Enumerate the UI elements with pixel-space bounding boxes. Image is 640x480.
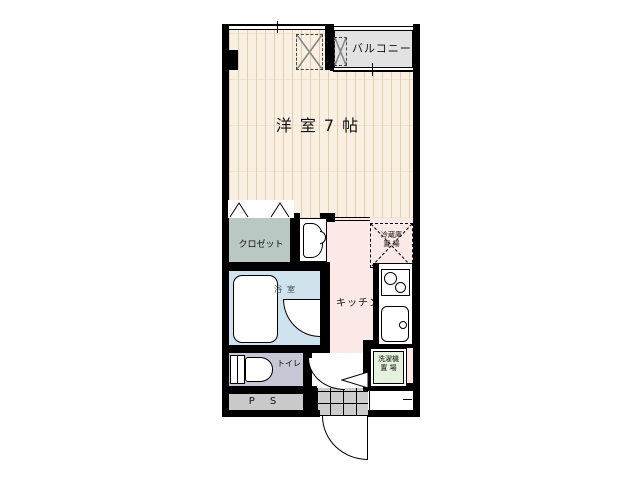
- stove-burner-icon: [395, 282, 406, 293]
- refrigerator-label-line2: 置 場: [383, 240, 399, 248]
- wall-left: [222, 24, 229, 417]
- floor-plan: バルコニー 洋室7帖 クロゼット 浴室 キッチン 冷蔵庫 置 場: [0, 0, 640, 480]
- toilet-label: トイレ: [277, 358, 301, 369]
- faucet-icon: [399, 321, 407, 329]
- wall-entrance-left: [303, 386, 317, 415]
- bathroom-label: 浴室: [274, 284, 300, 295]
- sliding-door-mullion-mark: [372, 63, 373, 76]
- entrance-step: [369, 391, 408, 410]
- washer-space-label: 洗濯機 置 場: [370, 355, 407, 373]
- wall-closet-bath: [222, 262, 330, 271]
- refrigerator-label-line1: 冷蔵庫: [381, 231, 402, 239]
- toilet-bowl: [245, 357, 273, 382]
- washer-label-line2: 置 場: [380, 364, 396, 372]
- bathtub: [233, 275, 278, 343]
- wall-bath-kitchen: [320, 262, 330, 353]
- pipe-space-label: P S: [228, 396, 303, 407]
- window-mullion-mark: [277, 21, 278, 33]
- wall-right: [413, 24, 420, 417]
- balcony-sliding-door-line: [333, 67, 413, 68]
- opening-line: [335, 220, 370, 221]
- toilet-tank-line: [237, 356, 238, 383]
- wall-toilet-bottom: [222, 386, 312, 394]
- closet-label: クロゼット: [229, 237, 293, 250]
- refrigerator-space-label: 冷蔵庫 置 場: [370, 231, 413, 249]
- step-mark: [403, 399, 412, 400]
- entrance-tile-floor: [317, 388, 368, 416]
- pillar: [229, 50, 238, 70]
- balcony-sliding-door-line: [333, 71, 413, 72]
- entrance-door-swing: [322, 416, 368, 460]
- main-room-label: 洋室7帖: [229, 112, 413, 136]
- balcony-label: バルコニー: [352, 40, 412, 56]
- ac-outdoor-unit-dashed-box: [334, 37, 347, 66]
- air-conditioner-dashed-box: [296, 34, 323, 70]
- kitchen-hall-door-leaf: [341, 371, 369, 389]
- closet-folding-door-icon: [228, 201, 294, 219]
- wall-bath-bottom: [222, 345, 330, 353]
- washer-label-line1: 洗濯機: [378, 355, 399, 363]
- wall-bottom-right: [368, 410, 420, 417]
- opening-line: [335, 217, 370, 218]
- wall-balcony-left: [325, 24, 334, 70]
- stove-burner-icon: [384, 272, 397, 285]
